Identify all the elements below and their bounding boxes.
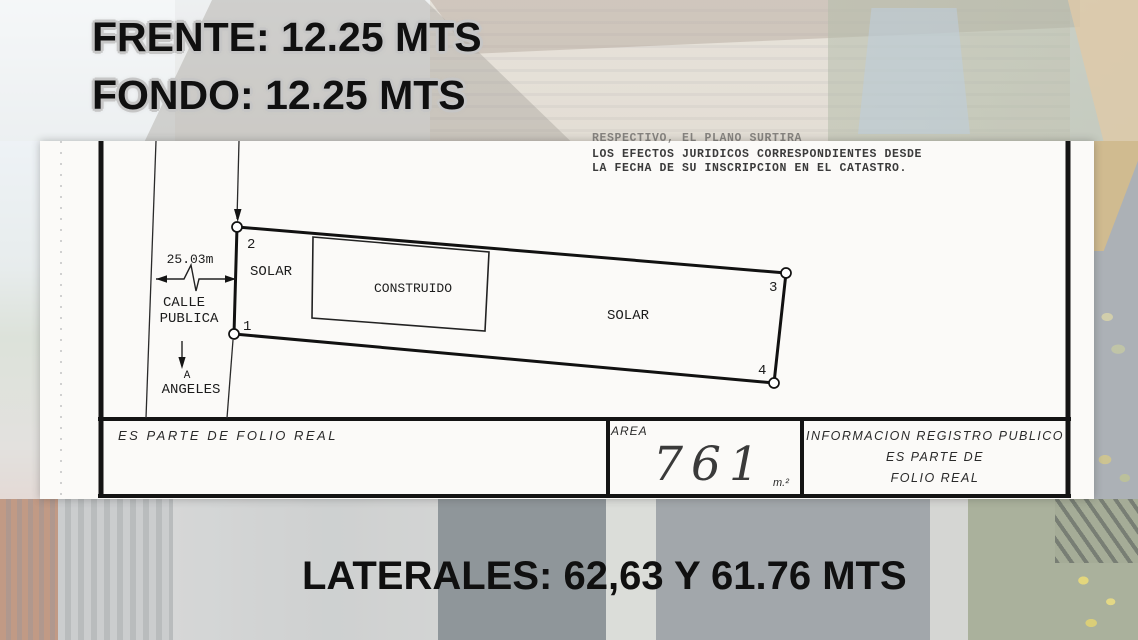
folio-note: ES PARTE DE FOLIO REAL	[118, 428, 338, 443]
survey-plan-panel: RESPECTIVO, EL PLANO SURTIRA LOS EFECTOS…	[40, 141, 1094, 499]
corner-number-2: 2	[247, 237, 255, 253]
corner-number-4: 4	[758, 363, 766, 379]
street-name-line1: CALLE	[163, 295, 205, 311]
corner-marker-2	[232, 222, 242, 232]
listing-flyer: FRENTE: 12.25 MTS FONDO: 12.25 MTS LATER…	[0, 0, 1138, 640]
corner-marker-1	[229, 329, 239, 339]
corner-marker-3	[781, 268, 791, 278]
lot-label-back: SOLAR	[607, 308, 650, 324]
white-wash-overlay	[0, 141, 40, 499]
area-unit: m.²	[773, 477, 789, 489]
registry-line1: INFORMACION REGISTRO PUBLICO	[802, 426, 1068, 447]
direction-marker: A	[184, 370, 191, 382]
dimension-arrowhead-left	[156, 275, 167, 283]
street-edge-right-upper	[237, 141, 239, 219]
registry-line2: ES PARTE DE	[802, 447, 1068, 468]
area-value: 761	[640, 437, 780, 492]
direction-arrowhead	[178, 357, 185, 369]
street-width-dimension: 25.03m	[167, 252, 214, 267]
corner-marker-4	[769, 378, 779, 388]
direction-destination: ANGELES	[162, 382, 221, 398]
registry-info-box: INFORMACION REGISTRO PUBLICO ES PARTE DE…	[802, 426, 1068, 489]
building-label: CONSTRUIDO	[374, 281, 452, 296]
fondo-measurement: FONDO: 12.25 MTS	[92, 72, 466, 119]
street-edge-left	[146, 141, 156, 418]
lot-label-front: SOLAR	[250, 264, 293, 280]
street-name-line2: PUBLICA	[160, 311, 219, 327]
street-edge-right-lower	[227, 340, 233, 418]
north-arrowhead	[234, 209, 242, 222]
laterales-measurement: LATERALES: 62,63 Y 61.76 MTS	[302, 554, 907, 599]
registry-line3: FOLIO REAL	[802, 468, 1068, 489]
corner-number-1: 1	[243, 319, 251, 335]
white-wash-overlay	[1094, 141, 1138, 499]
area-label: AREA	[611, 424, 648, 438]
corner-number-3: 3	[769, 280, 777, 296]
dimension-line	[156, 265, 236, 291]
frente-measurement: FRENTE: 12.25 MTS	[92, 14, 482, 61]
